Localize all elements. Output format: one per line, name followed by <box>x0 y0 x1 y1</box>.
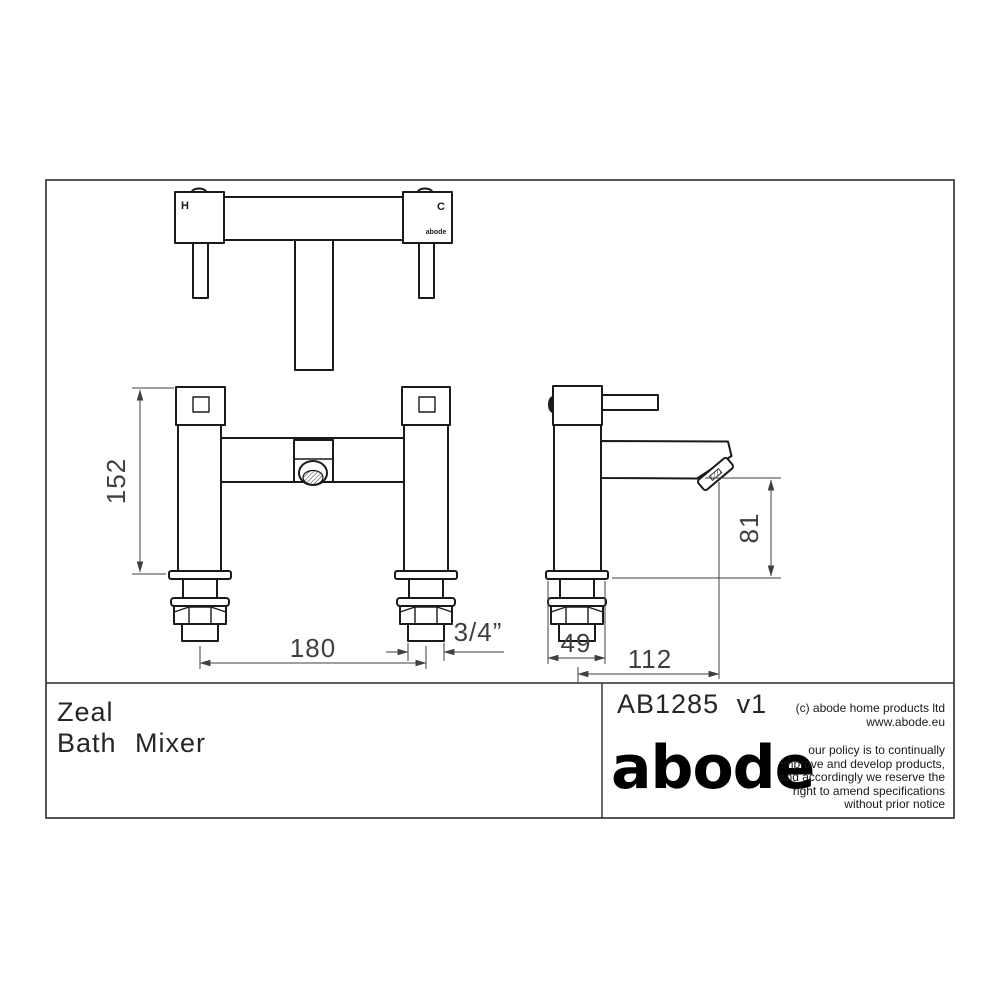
dim-inlet-centres: 180 <box>200 633 426 669</box>
specification-sheet: H C abode <box>0 0 1000 1000</box>
top-plan-view: H C abode <box>175 189 452 370</box>
dim-81-label: 81 <box>734 513 764 544</box>
abode-logo: abode <box>611 728 791 808</box>
front-right-base <box>395 571 457 641</box>
side-view <box>546 386 734 641</box>
policy-line: improve and develop products, <box>779 758 945 772</box>
front-view <box>169 387 457 641</box>
front-left-head <box>176 387 225 425</box>
side-head <box>553 386 602 425</box>
front-right-head <box>402 387 450 425</box>
front-left-body <box>178 425 221 571</box>
dim-body-height: 152 <box>101 388 174 574</box>
product-name-line2: Bath Mixer <box>57 728 206 759</box>
technical-drawing-svg: H C abode <box>0 0 1000 1000</box>
brand-mark-small: abode <box>426 229 447 236</box>
copyright-line: (c) abode home products ltd <box>796 702 945 716</box>
dim-180-label: 180 <box>290 633 336 663</box>
website: www.abode.eu <box>796 716 945 730</box>
policy-line: without prior notice <box>779 798 945 812</box>
cold-label: C <box>437 201 445 213</box>
side-body <box>554 425 601 571</box>
front-aerator <box>303 471 323 485</box>
copyright-block: (c) abode home products ltd www.abode.eu <box>796 702 945 729</box>
hot-label: H <box>181 200 189 212</box>
plan-body-bar <box>224 197 403 240</box>
policy-block: our policy is to continually improve and… <box>779 744 945 812</box>
dim-49-label: 49 <box>561 628 592 658</box>
policy-line: right to amend specifications <box>779 785 945 799</box>
product-name-line1: Zeal <box>57 697 114 728</box>
side-clip <box>548 396 553 413</box>
dim-152-label: 152 <box>101 458 131 504</box>
product-code: AB1285 v1 <box>617 689 767 720</box>
policy-line: our policy is to continually <box>779 744 945 758</box>
dim-112-label: 112 <box>628 644 672 674</box>
front-right-body <box>404 425 448 571</box>
plan-cold-lever <box>419 243 434 298</box>
dim-thread-label: 3/4” <box>454 617 503 647</box>
dim-spout-height: 81 <box>612 478 781 578</box>
front-left-base <box>169 571 231 641</box>
side-lever <box>602 395 658 410</box>
plan-hot-lever <box>193 243 208 298</box>
policy-line: and accordingly we reserve the <box>779 771 945 785</box>
plan-spout <box>295 240 333 370</box>
